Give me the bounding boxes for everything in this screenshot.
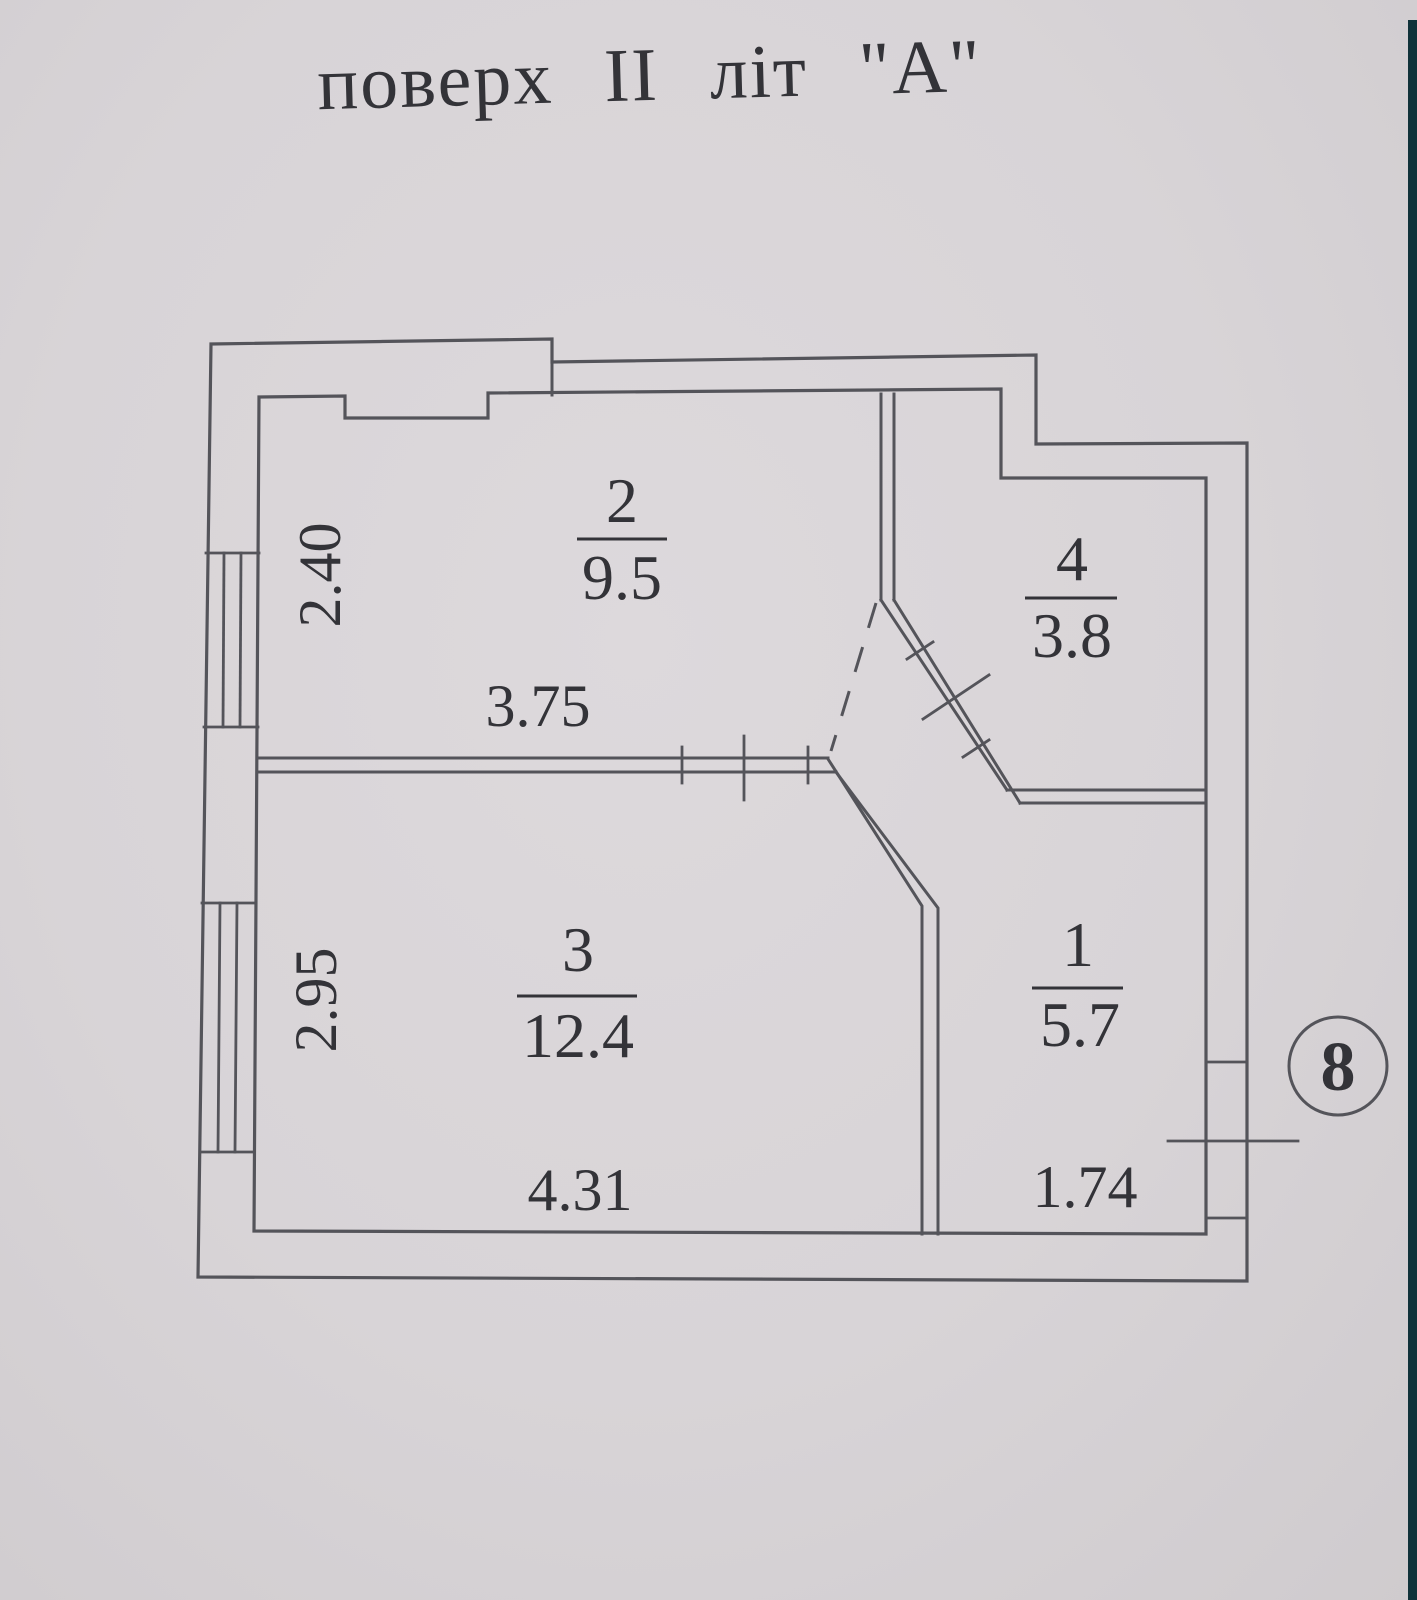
floor-plan-drawing: поверх II літ "А": [0, 0, 1417, 1600]
wall-line: [828, 759, 922, 1234]
dimension-room-3-width: 4.31: [528, 1157, 633, 1223]
wall-rooms-2-3: [259, 736, 836, 800]
room-3-label: 3 12.4: [517, 914, 637, 1071]
room-3-area: 12.4: [522, 1000, 634, 1071]
room-2-label: 2 9.5: [577, 465, 667, 613]
inner-wall-outline: [254, 389, 1206, 1234]
room-4-number: 4: [1056, 523, 1088, 594]
axis-marker: 8: [1289, 1017, 1387, 1115]
room-1-area: 5.7: [1040, 989, 1120, 1060]
wall-rooms-3-1: [828, 759, 938, 1234]
scan-edge-band: [1408, 20, 1417, 1600]
window-glazing-line: [223, 553, 224, 727]
room-2-area: 9.5: [582, 542, 662, 613]
window-room-2: [204, 553, 259, 727]
wall-rooms-4-1: [1007, 790, 1206, 803]
window-glazing-line: [240, 553, 241, 727]
scanned-floor-plan-page: поверх II літ "А": [0, 0, 1417, 1600]
axis-marker-number: 8: [1321, 1029, 1356, 1106]
room-3-number: 3: [562, 914, 594, 985]
page-title: поверх II літ "А": [316, 24, 983, 127]
exterior-walls: [198, 339, 1247, 1281]
room-4-area: 3.8: [1032, 600, 1112, 671]
dimension-room-1-width: 1.74: [1033, 1154, 1138, 1220]
wall-line: [894, 600, 1020, 803]
dimension-room-2-depth: 2.40: [287, 523, 353, 628]
wall-rooms-2-4: [881, 394, 894, 600]
room-4-label: 4 3.8: [1025, 523, 1117, 671]
window-room-3: [200, 903, 256, 1152]
room-1-label: 1 5.7: [1032, 909, 1123, 1060]
wall-line: [881, 600, 1007, 790]
outer-wall-outline: [198, 339, 1247, 1281]
dimension-room-3-depth: 2.95: [283, 948, 349, 1053]
room-1-number: 1: [1062, 909, 1094, 980]
right-wall-opening: [1168, 1062, 1298, 1218]
wall-room-4-diagonal: [881, 600, 1020, 803]
window-glazing-line: [235, 903, 237, 1152]
window-glazing-line: [218, 903, 220, 1152]
room-2-number: 2: [606, 465, 638, 536]
dimension-room-2-width: 3.75: [486, 673, 591, 739]
dashed-boundary-line: [831, 603, 876, 751]
